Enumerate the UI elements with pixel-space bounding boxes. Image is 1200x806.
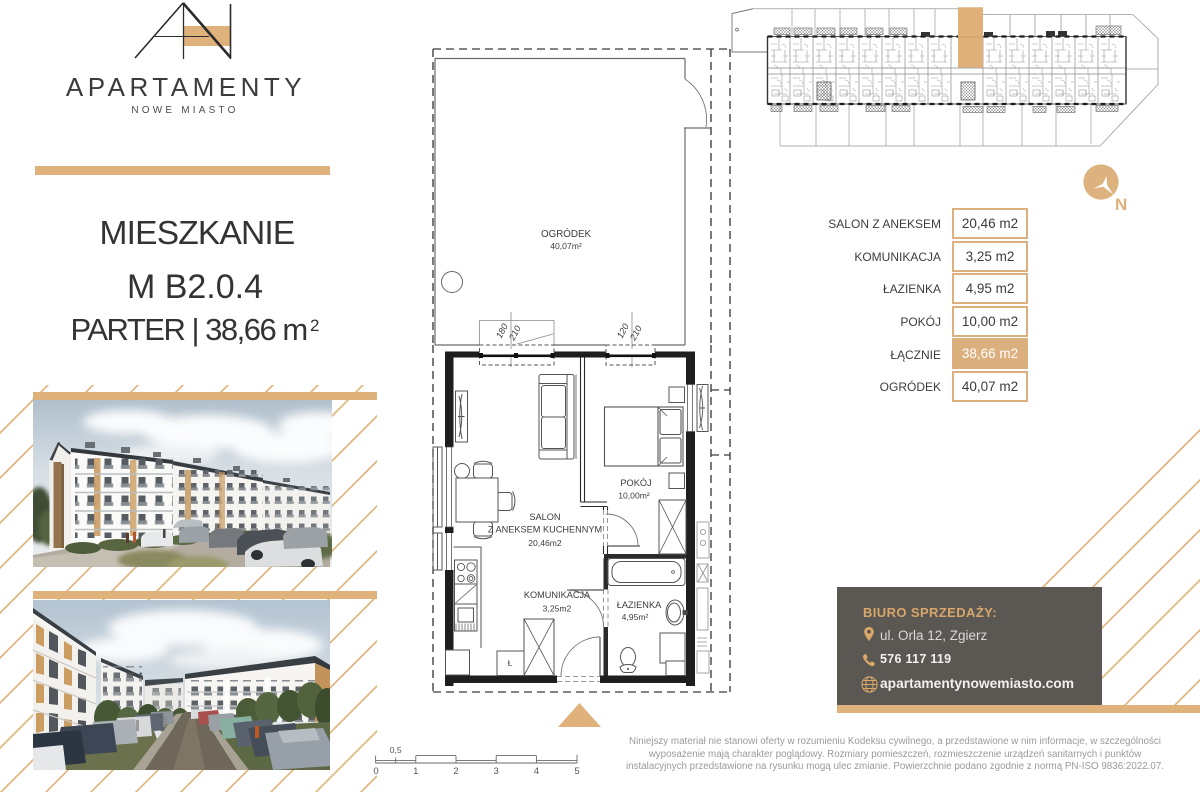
svg-text:20,46m2: 20,46m2: [528, 538, 562, 548]
svg-text:4,95m²: 4,95m²: [622, 612, 649, 622]
svg-text:3,25m2: 3,25m2: [543, 604, 572, 614]
svg-text:10,00m²: 10,00m²: [618, 491, 650, 501]
svg-text:3: 3: [494, 766, 499, 777]
svg-text:KOMUNIKACJA: KOMUNIKACJA: [524, 590, 591, 600]
svg-text:1: 1: [413, 766, 418, 777]
svg-text:SALON: SALON: [529, 512, 560, 522]
svg-text:ŁAZIENKA: ŁAZIENKA: [617, 600, 662, 610]
svg-text:OGRÓDEK: OGRÓDEK: [541, 229, 592, 240]
svg-text:40,07m²: 40,07m²: [550, 241, 582, 251]
svg-text:N: N: [1115, 195, 1127, 214]
svg-text:Z ANEKSEM KUCHENNYM: Z ANEKSEM KUCHENNYM: [488, 525, 602, 535]
svg-text:4: 4: [534, 766, 539, 777]
svg-text:0,5: 0,5: [390, 745, 402, 755]
svg-text:5: 5: [574, 766, 579, 777]
svg-text:POKÓJ: POKÓJ: [620, 478, 651, 488]
svg-text:0: 0: [373, 766, 378, 777]
svg-text:Ł: Ł: [508, 659, 513, 668]
svg-text:2: 2: [453, 766, 458, 777]
